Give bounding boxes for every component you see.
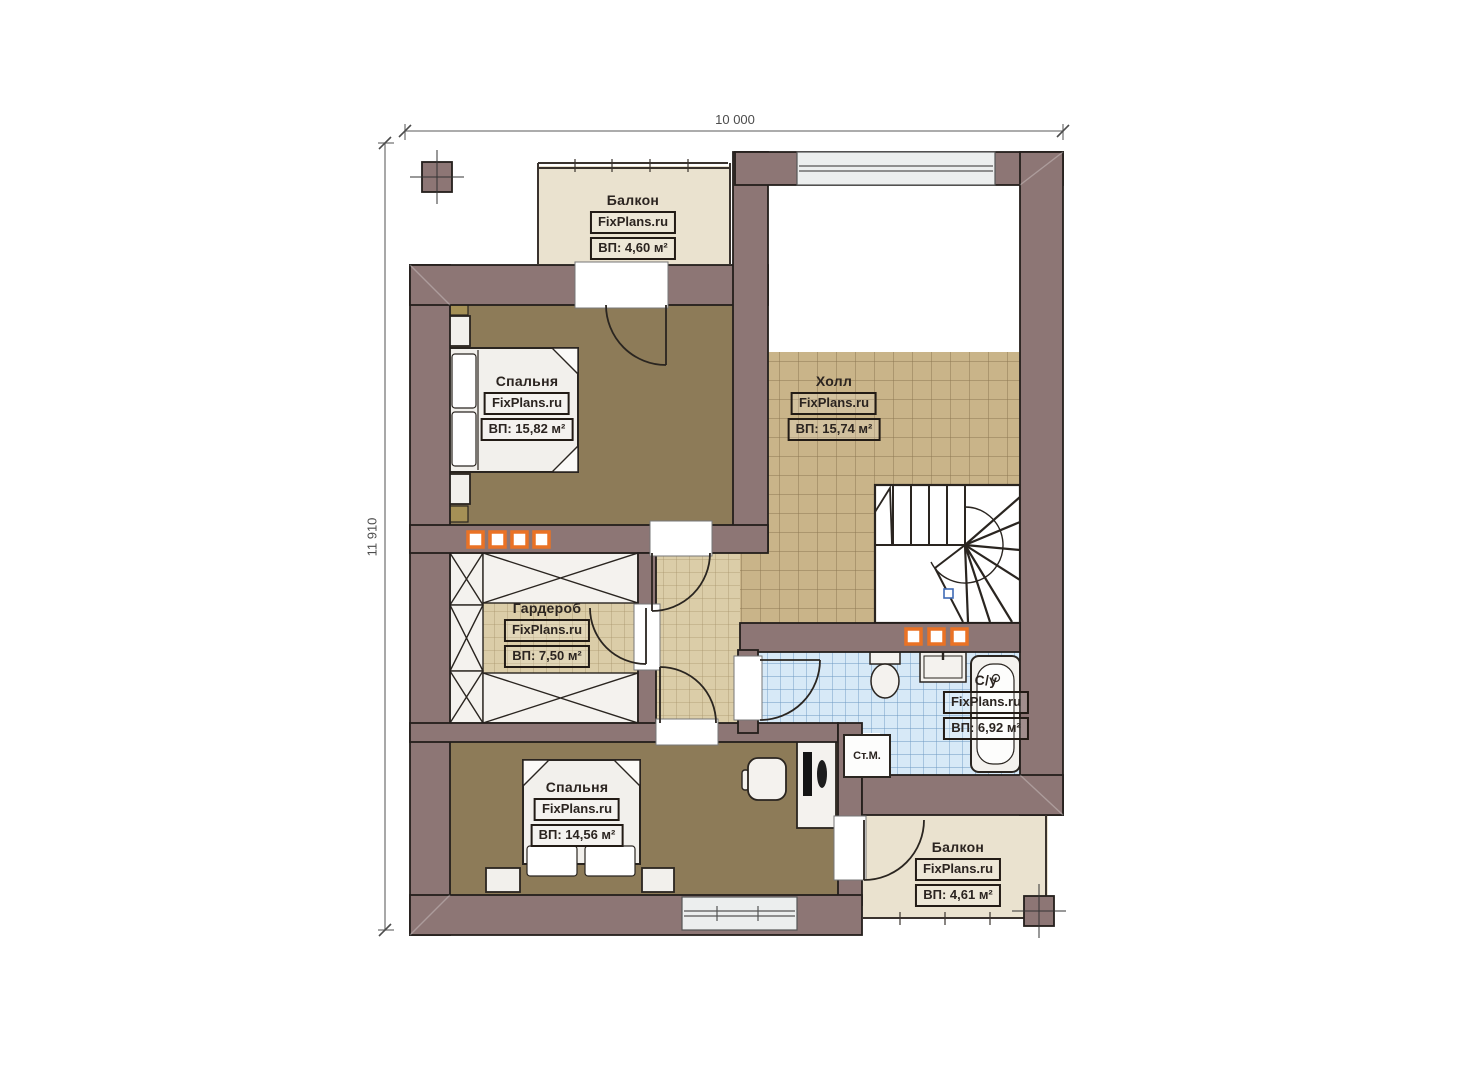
watermark-tag: FixPlans.ru: [590, 211, 676, 234]
room-label-bedroom-1: Спальня FixPlans.ru ВП: 15,82 м²: [481, 373, 574, 441]
room-name: Спальня: [546, 779, 609, 795]
radiator-icon: [952, 629, 967, 644]
door-opening-balcony-bottom: [834, 816, 866, 880]
room-name: Гардероб: [513, 600, 582, 616]
room-area-tag: ВП: 6,92 м²: [943, 717, 1029, 740]
radiator-icon: [468, 532, 483, 547]
room-label-bedroom-2: Спальня FixPlans.ru ВП: 14,56 м²: [531, 779, 624, 847]
door-opening-bedroom2: [656, 719, 718, 745]
room-area-tag: ВП: 4,60 м²: [590, 237, 676, 260]
room-label-wardrobe: Гардероб FixPlans.ru ВП: 7,50 м²: [504, 600, 590, 668]
wall-hall-bathroom: [740, 623, 1020, 652]
window-top: [797, 152, 995, 185]
radiator-icon: [534, 532, 549, 547]
room-name: С/у: [975, 672, 998, 688]
room-area-tag: ВП: 4,61 м²: [915, 884, 1001, 907]
room-label-bathroom: С/у FixPlans.ru ВП: 6,92 м²: [943, 672, 1029, 740]
wall-left: [410, 265, 450, 935]
room-name: Балкон: [932, 839, 984, 855]
washing-machine-label: Ст.М.: [853, 750, 881, 762]
radiator-icon: [512, 532, 527, 547]
corridor-floor: [656, 553, 740, 723]
dimension-width-label: 10 000: [715, 112, 755, 127]
room-name: Холл: [816, 373, 852, 389]
pillow: [527, 846, 577, 876]
nightstand: [486, 868, 520, 892]
room-name: Балкон: [607, 192, 659, 208]
wall-bedroom1-bottom: [410, 525, 768, 553]
watermark-tag: FixPlans.ru: [484, 392, 570, 415]
room-label-balcony-bottom: Балкон FixPlans.ru ВП: 4,61 м²: [915, 839, 1001, 907]
watermark-tag: FixPlans.ru: [915, 858, 1001, 881]
nightstand: [642, 868, 674, 892]
computer-icon: [803, 752, 812, 796]
stairs-marker: [944, 589, 953, 598]
radiator-icon: [490, 532, 505, 547]
floor-plan-drawing: [0, 0, 1473, 1080]
room-area-tag: ВП: 15,82 м²: [481, 418, 574, 441]
watermark-tag: FixPlans.ru: [504, 619, 590, 642]
room-name: Спальня: [496, 373, 559, 389]
radiator-icon: [906, 629, 921, 644]
toilet-icon: [871, 664, 899, 698]
watermark-tag: FixPlans.ru: [791, 392, 877, 415]
door-opening-wardrobe: [634, 604, 660, 670]
floor-plan-canvas: Балкон FixPlans.ru ВП: 4,60 м² Спальня F…: [0, 0, 1473, 1080]
chair: [748, 758, 786, 800]
window-bottom: [682, 897, 797, 930]
pillow: [452, 412, 476, 466]
watermark-tag: FixPlans.ru: [534, 798, 620, 821]
room-area-tag: ВП: 15,74 м²: [788, 418, 881, 441]
room-label-hall: Холл FixPlans.ru ВП: 15,74 м²: [788, 373, 881, 441]
pillow: [585, 846, 635, 876]
wall-wardrobe-bedroom2: [410, 723, 838, 742]
dimension-height-label: 11 910: [365, 518, 380, 557]
toilet-tank: [870, 652, 900, 664]
door-opening-bedroom1: [650, 521, 712, 556]
washing-machine: Ст.М.: [843, 734, 891, 778]
room-area-tag: ВП: 14,56 м²: [531, 824, 624, 847]
door-opening-balcony-top: [575, 262, 668, 308]
wall-bedroom1-hall: [733, 152, 768, 550]
staircase: [875, 485, 1020, 623]
door-opening-bathroom: [734, 656, 762, 720]
wall-bathroom-bottom: [862, 775, 1063, 815]
desk: [797, 733, 836, 828]
hall-floor-strip: [740, 550, 768, 623]
watermark-tag: FixPlans.ru: [943, 691, 1029, 714]
room-area-tag: ВП: 7,50 м²: [504, 645, 590, 668]
room-label-balcony-top: Балкон FixPlans.ru ВП: 4,60 м²: [590, 192, 676, 260]
radiator-icon: [929, 629, 944, 644]
pillow: [452, 354, 476, 408]
